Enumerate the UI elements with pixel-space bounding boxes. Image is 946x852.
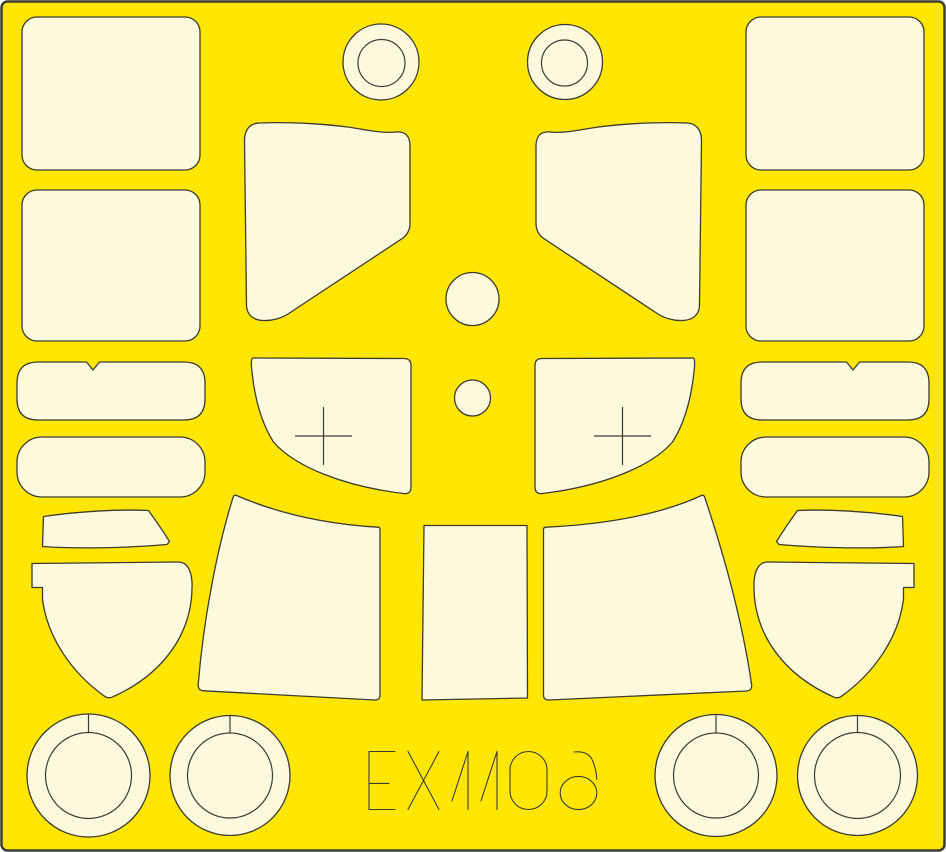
wheel-hub-ring-mask-inner-left <box>170 716 290 836</box>
rounded-panel-mask-mid-right <box>746 190 924 341</box>
plain-pill-mask-right <box>741 437 929 497</box>
rounded-panel-mask-top-right <box>746 17 924 170</box>
wheel-hub-ring-mask-outer-right <box>798 715 918 836</box>
rounded-panel-mask-mid-left <box>22 190 200 341</box>
visor-band-mask-left <box>43 510 170 548</box>
canopy-side-mask-left <box>198 495 380 700</box>
canopy-center-mask <box>422 526 528 701</box>
notched-pill-mask-left <box>17 362 205 420</box>
notched-pill-mask-right <box>741 362 929 420</box>
round-dot-mask-small <box>455 380 491 416</box>
mask-sheet: EX1106 <box>0 0 946 852</box>
mask-sheet-drawing <box>0 0 946 852</box>
ring-mask-top-right-outer <box>528 25 603 100</box>
rounded-panel-mask-top-left <box>22 17 200 170</box>
wheel-hub-ring-mask-inner-right <box>655 715 777 837</box>
round-dot-mask-large <box>446 273 499 326</box>
ring-mask-top-left-outer <box>343 24 419 100</box>
visor-band-mask-right <box>777 510 904 548</box>
wheel-hub-ring-mask-outer-left <box>27 714 150 837</box>
plain-pill-mask-left <box>17 437 205 497</box>
